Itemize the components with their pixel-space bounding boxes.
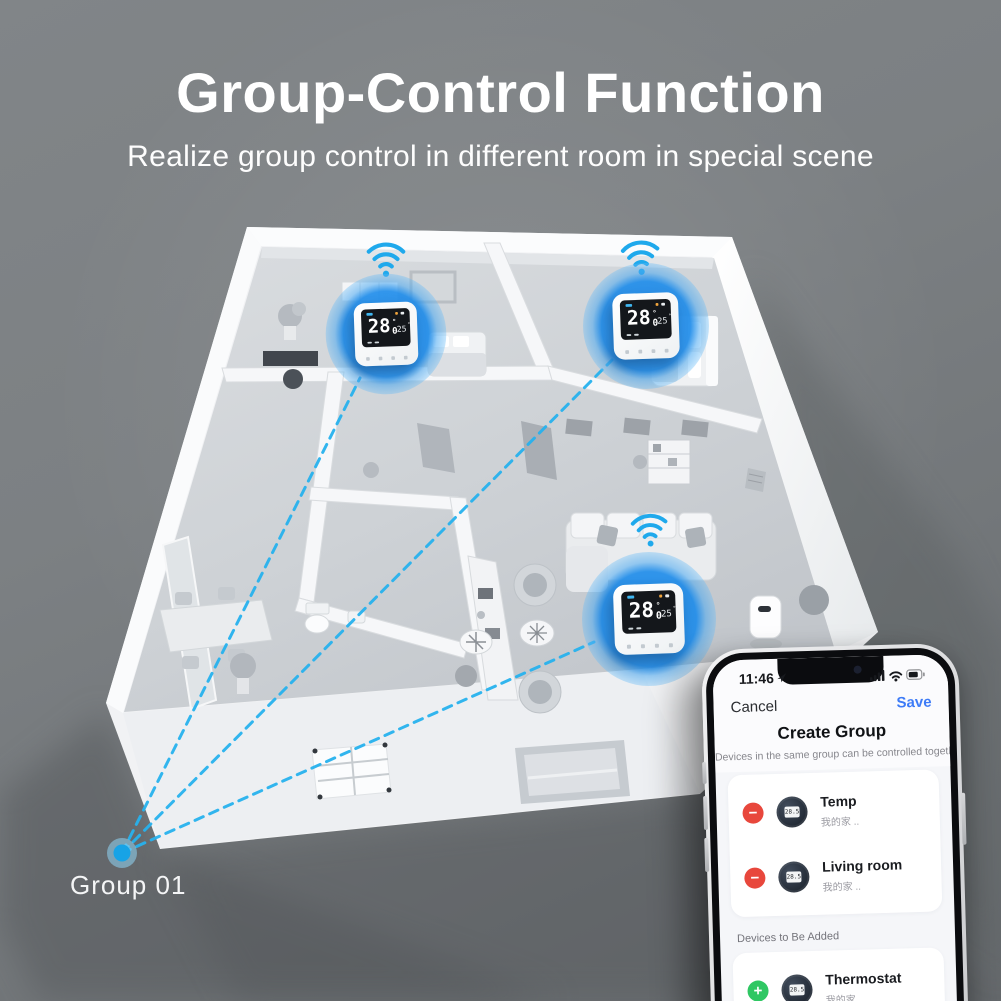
device-avatar: 28.5: [778, 861, 810, 893]
battery-icon: [907, 669, 925, 679]
marketing-banner: 28 ° 0 25 ° 28 ° 0 25 °: [0, 0, 1001, 1001]
status-icons: [870, 667, 926, 682]
page-subtitle: Realize group control in different room …: [0, 140, 1001, 174]
chair: [455, 665, 477, 687]
hall-plant: [363, 462, 379, 478]
plant: [633, 455, 647, 469]
pillow: [596, 524, 619, 547]
section-label: Devices to Be Added: [737, 927, 955, 945]
smartphone: 11:46: [701, 643, 970, 1001]
device-name: Living room: [822, 856, 903, 874]
device-name: Temp: [820, 793, 859, 810]
avatar-display: 28.5: [784, 806, 799, 817]
thermostat-keys[interactable]: [366, 356, 408, 361]
device-home: 我的家 ..: [826, 990, 903, 1001]
device-avatar: 28.5: [776, 796, 808, 828]
thermostat-device[interactable]: 28 ° 0 25 °: [613, 583, 685, 655]
device-row-temp[interactable]: − 28.5 Temp 我的家 ..: [728, 775, 941, 846]
office-chair: [283, 369, 303, 389]
cancel-button[interactable]: Cancel: [730, 698, 777, 716]
device-home: 我的家 ..: [821, 813, 860, 829]
device-name: Thermostat: [825, 970, 902, 988]
thermostat-lcd: 28 ° 0 25 °: [620, 299, 672, 340]
cellular-icon: [870, 669, 885, 680]
status-time: 11:46: [739, 670, 774, 687]
room-temp: 28: [627, 308, 651, 329]
pillow: [685, 526, 707, 548]
room-temp: 28: [367, 317, 390, 337]
group-devices-card: − 28.5 Temp 我的家 .. − 28.5 Living ro: [728, 769, 943, 917]
device-row-living-room[interactable]: − 28.5 Living room 我的家 ..: [729, 840, 942, 911]
save-button[interactable]: Save: [896, 694, 932, 712]
group-dot: [107, 838, 137, 868]
remove-button[interactable]: −: [742, 802, 764, 824]
device-avatar: 28.5: [781, 974, 813, 1001]
thermostat-keys[interactable]: [627, 643, 673, 649]
thermostat-lcd: 28 ° 0 25 °: [621, 590, 676, 634]
set-temp: 25: [661, 609, 672, 619]
add-button[interactable]: +: [747, 980, 769, 1001]
page-title: Group-Control Function: [0, 60, 1001, 125]
available-devices-card: + 28.5 Thermostat 我的家 ..: [732, 947, 946, 1001]
group-label: Group 01: [70, 870, 186, 901]
toilet: [305, 615, 329, 633]
thermostat-device[interactable]: 28 ° 0 25 °: [612, 292, 680, 360]
thermostat-bedroom-right[interactable]: 28 ° 0 25 °: [583, 263, 709, 389]
avatar-display: 28.5: [786, 871, 801, 882]
wifi-status-icon: [890, 672, 901, 678]
device-row-thermostat[interactable]: + 28.5 Thermostat 我的家 ..: [733, 953, 946, 1001]
set-temp: 25: [397, 325, 407, 334]
desk: [263, 351, 318, 366]
thermostat-lcd: 28 ° 0 25 °: [361, 308, 411, 347]
desk-chair: [799, 585, 829, 615]
plant: [230, 653, 256, 679]
room-temp: 28: [628, 600, 654, 622]
mute-switch: [702, 762, 707, 784]
remove-button[interactable]: −: [744, 867, 766, 889]
thermostat-keys[interactable]: [625, 349, 668, 354]
thermostat-living-room[interactable]: 28 ° 0 25 °: [582, 552, 716, 686]
thermostat-device[interactable]: 28 ° 0 25 °: [353, 301, 418, 366]
set-temp: 25: [657, 317, 668, 327]
device-home: 我的家 ..: [822, 876, 903, 893]
location-arrow-icon: [777, 673, 787, 683]
smart-gateway: [750, 596, 781, 638]
phone-screen: 11:46: [712, 654, 958, 1001]
avatar-display: 28.5: [789, 984, 804, 995]
thermostat-bedroom-left[interactable]: 28 ° 0 25 °: [326, 274, 447, 395]
